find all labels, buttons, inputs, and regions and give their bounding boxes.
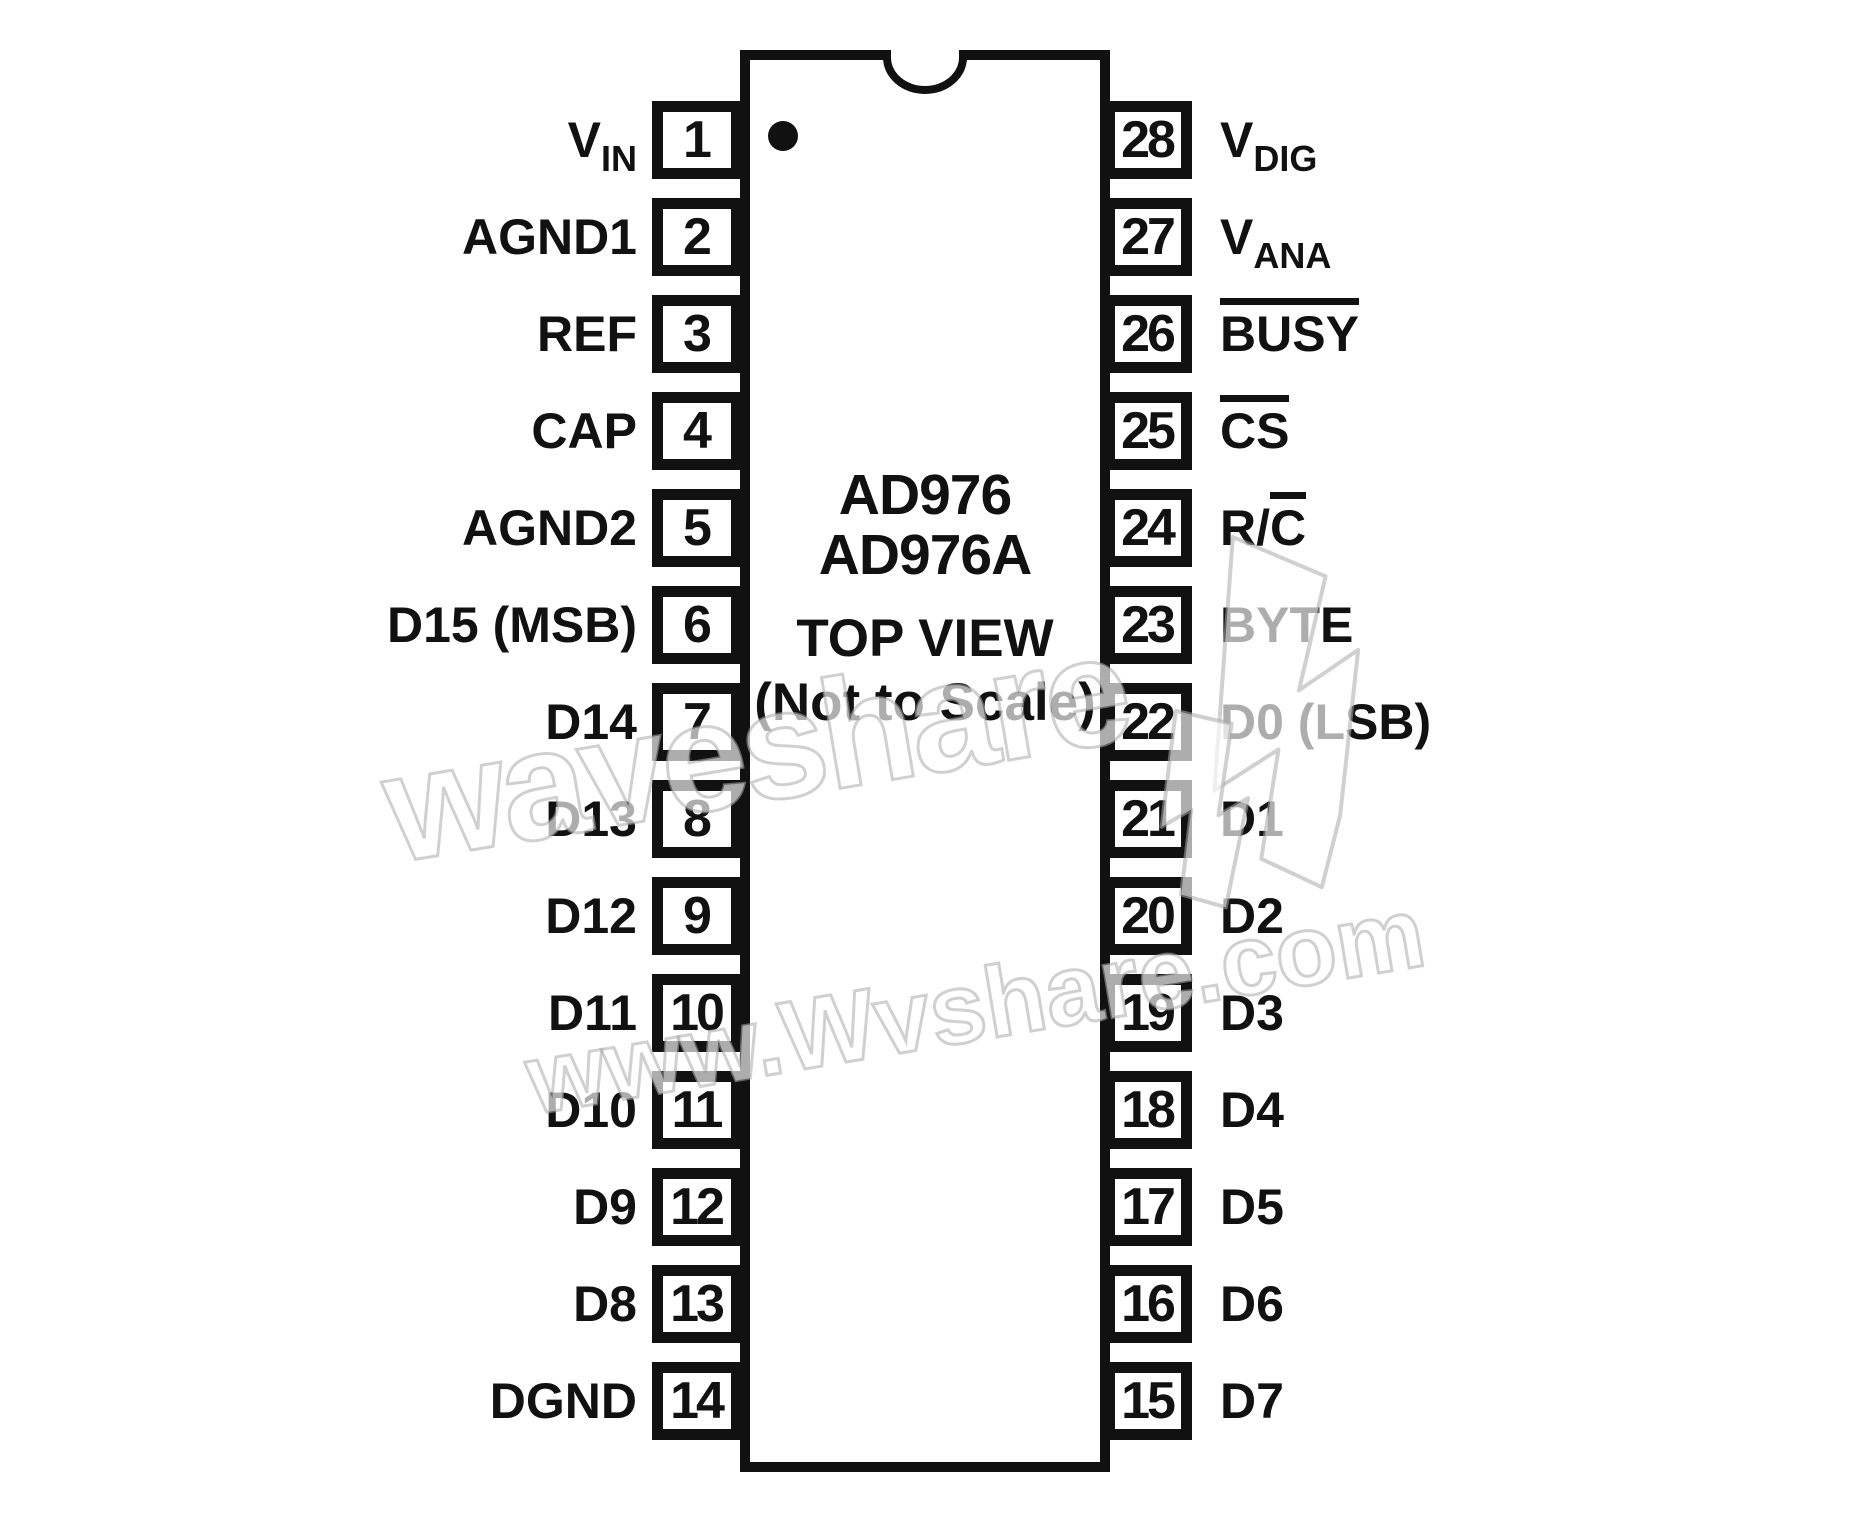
pin-number-28: 28 [1121, 114, 1173, 166]
pin-number-15: 15 [1121, 1375, 1173, 1427]
pin-label-segment: CS [1220, 395, 1289, 456]
chip-scale-note: (Not to Scale) [740, 675, 1110, 731]
pin-number-23: 23 [1121, 599, 1173, 651]
pin-number-1: 1 [683, 114, 709, 166]
pin-number-2: 2 [683, 211, 709, 263]
pin-box-18: 18 [1104, 1071, 1192, 1149]
pin-label-segment: D7 [1220, 1373, 1284, 1429]
pin-box-16: 16 [1104, 1265, 1192, 1343]
pin-box-21: 21 [1104, 780, 1192, 858]
pin-label-25: CS [1220, 392, 1840, 470]
pin-box-11: 11 [652, 1071, 742, 1149]
pin-label-segment: D4 [1220, 1082, 1284, 1138]
pin-label-segment: D8 [573, 1276, 637, 1332]
pin-box-17: 17 [1104, 1168, 1192, 1246]
pin-box-8: 8 [652, 780, 742, 858]
pin-label-17: D5 [1220, 1168, 1840, 1246]
pin-label-segment: D3 [1220, 985, 1284, 1041]
pin-number-10: 10 [670, 987, 722, 1039]
pin-label-segment: V [1220, 112, 1253, 168]
pin-label-segment: D6 [1220, 1276, 1284, 1332]
pin-number-27: 27 [1121, 211, 1173, 263]
pin-label-segment: AGND2 [462, 500, 637, 556]
pin-box-9: 9 [652, 877, 742, 955]
pin-number-19: 19 [1121, 987, 1173, 1039]
pin-label-9: D12 [90, 877, 637, 955]
pin-label-4: CAP [90, 392, 637, 470]
pin-label-segment: D10 [545, 1082, 637, 1138]
pin-number-5: 5 [683, 502, 709, 554]
pin-label-segment: D5 [1220, 1179, 1284, 1235]
chip-title: AD976 AD976A TOP VIEW (Not to Scale) [740, 465, 1110, 731]
pin-label-11: D10 [90, 1071, 637, 1149]
chip-name-line1: AD976 [740, 465, 1110, 525]
pin-label-8: D13 [90, 780, 637, 858]
pin-label-1: VIN [90, 101, 637, 179]
pin-label-segment: D13 [545, 791, 637, 847]
pin-box-25: 25 [1104, 392, 1192, 470]
pin-label-segment: V [1220, 209, 1253, 265]
pin-box-2: 2 [652, 198, 742, 276]
pin-number-24: 24 [1121, 502, 1173, 554]
pin-number-16: 16 [1121, 1278, 1173, 1330]
pin-label-segment: D12 [545, 888, 637, 944]
pin-box-10: 10 [652, 974, 742, 1052]
pin-label-20: D2 [1220, 877, 1840, 955]
pin-label-segment: REF [537, 306, 637, 362]
pin-box-27: 27 [1104, 198, 1192, 276]
pin-box-26: 26 [1104, 295, 1192, 373]
pin-label-22: D0 (LSB) [1220, 683, 1840, 761]
pin-label-18: D4 [1220, 1071, 1840, 1149]
pin-number-25: 25 [1121, 405, 1173, 457]
pin-label-26: BUSY [1220, 295, 1840, 373]
pin-number-4: 4 [683, 405, 709, 457]
chip-name-line2: AD976A [740, 525, 1110, 585]
pin-box-14: 14 [652, 1362, 742, 1440]
pin-number-8: 8 [683, 793, 709, 845]
pin-label-segment: AGND1 [462, 209, 637, 265]
pin-number-18: 18 [1121, 1084, 1173, 1136]
pin-number-26: 26 [1121, 308, 1173, 360]
pin-label-segment: R/ [1220, 500, 1270, 556]
pin-label-7: D14 [90, 683, 637, 761]
pin1-marker-dot [768, 121, 798, 151]
pin-label-segment: D9 [573, 1179, 637, 1235]
pin-number-12: 12 [670, 1181, 722, 1233]
pin-label-2: AGND1 [90, 198, 637, 276]
pin-box-3: 3 [652, 295, 742, 373]
pin-label-15: D7 [1220, 1362, 1840, 1440]
chip-body [740, 50, 1110, 1472]
pin-box-12: 12 [652, 1168, 742, 1246]
pin-box-13: 13 [652, 1265, 742, 1343]
pin-label-13: D8 [90, 1265, 637, 1343]
pin-number-21: 21 [1121, 793, 1173, 845]
pin-label-segment: D0 (LSB) [1220, 694, 1431, 750]
pin-label-segment: BYTE [1220, 597, 1353, 653]
pin-number-9: 9 [683, 890, 709, 942]
pin-label-16: D6 [1220, 1265, 1840, 1343]
pin-box-20: 20 [1104, 877, 1192, 955]
pin-box-4: 4 [652, 392, 742, 470]
pin-label-6: D15 (MSB) [90, 586, 637, 664]
pin-box-7: 7 [652, 683, 742, 761]
pin-label-5: AGND2 [90, 489, 637, 567]
pin-label-10: D11 [90, 974, 637, 1052]
pin-label-segment: CAP [531, 403, 637, 459]
pin-number-13: 13 [670, 1278, 722, 1330]
pin-label-segment: DGND [490, 1373, 637, 1429]
pin-box-22: 22 [1104, 683, 1192, 761]
pin-label-segment: C [1270, 492, 1306, 553]
pinout-diagram: AD976 AD976A TOP VIEW (Not to Scale) 1VI… [0, 0, 1870, 1536]
pin-box-15: 15 [1104, 1362, 1192, 1440]
pin-label-segment: V [568, 112, 601, 168]
pin-label-19: D3 [1220, 974, 1840, 1052]
pin-label-segment: D14 [545, 694, 637, 750]
pin-box-24: 24 [1104, 489, 1192, 567]
pin-label-segment: BUSY [1220, 298, 1359, 359]
pin-label-3: REF [90, 295, 637, 373]
pin-label-23: BYTE [1220, 586, 1840, 664]
pin-number-17: 17 [1121, 1181, 1173, 1233]
pin-number-20: 20 [1121, 890, 1173, 942]
pin-box-23: 23 [1104, 586, 1192, 664]
pin-box-5: 5 [652, 489, 742, 567]
pin-box-1: 1 [652, 101, 742, 179]
pin-label-segment: IN [601, 138, 637, 179]
pin-label-21: D1 [1220, 780, 1840, 858]
pin-number-6: 6 [683, 599, 709, 651]
pin-label-24: R/C [1220, 489, 1840, 567]
pin-label-segment: D1 [1220, 791, 1284, 847]
chip-view-label: TOP VIEW [740, 611, 1110, 667]
pin-box-19: 19 [1104, 974, 1192, 1052]
pin-label-segment: D15 (MSB) [387, 597, 637, 653]
pin-label-28: VDIG [1220, 101, 1840, 179]
pin-number-7: 7 [683, 696, 709, 748]
pin-label-27: VANA [1220, 198, 1840, 276]
pin-box-28: 28 [1104, 101, 1192, 179]
pin-number-14: 14 [670, 1375, 722, 1427]
pin-box-6: 6 [652, 586, 742, 664]
pin-label-segment: DIG [1253, 138, 1317, 179]
pin-label-segment: ANA [1253, 235, 1331, 276]
pin-number-22: 22 [1121, 696, 1173, 748]
pin-label-12: D9 [90, 1168, 637, 1246]
pin-number-3: 3 [683, 308, 709, 360]
pin-label-segment: D2 [1220, 888, 1284, 944]
pin-number-11: 11 [672, 1084, 721, 1136]
pin-label-14: DGND [90, 1362, 637, 1440]
pin-label-segment: D11 [548, 985, 637, 1041]
